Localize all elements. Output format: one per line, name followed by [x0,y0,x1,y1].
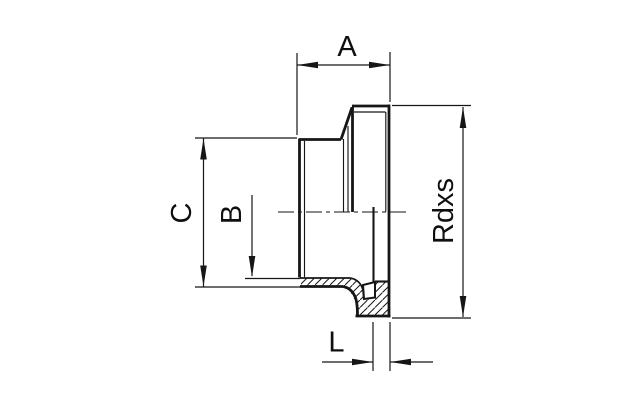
arrowhead-up [460,107,467,128]
arrowhead-down [200,266,207,287]
arrowhead-right [352,359,373,366]
arrowhead-right [369,62,390,68]
dim-label-c: C [166,203,198,224]
body-to-thread-transition [341,108,352,140]
arrowhead-left [297,62,318,68]
thread-relief-groove [363,282,375,299]
dimension-b: B [216,195,300,279]
dim-label-rdxs: Rdxs [428,178,460,244]
technical-drawing-canvas: A C B Rdxs L [0,0,640,401]
dim-label-a: A [337,31,357,63]
dim-label-b: B [216,205,248,224]
arrowhead-left [390,359,411,366]
fitting-section-drawing: A C B Rdxs L [0,0,640,401]
dim-label-l: L [328,327,344,359]
arrowhead-down [249,256,256,277]
arrowhead-up [200,139,207,160]
dimension-a: A [297,31,390,135]
arrowhead-down [460,296,467,317]
dimension-l: L [322,322,433,371]
